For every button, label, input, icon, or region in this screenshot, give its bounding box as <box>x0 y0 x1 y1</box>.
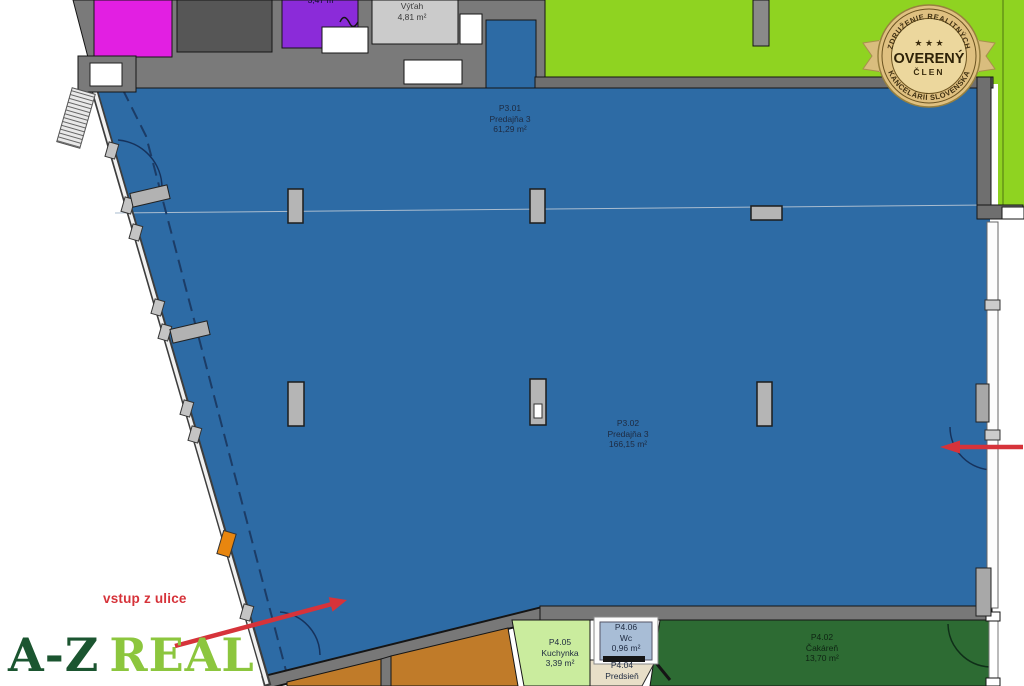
room-label-p404: P4.04 Predsieň <box>605 660 639 681</box>
window-opening <box>90 63 122 86</box>
entrance-annotation: vstup z ulice <box>103 591 187 606</box>
column <box>757 382 772 426</box>
room-label-vytah: Výťah 4,81 m² <box>398 1 427 22</box>
pilaster-right <box>976 384 989 422</box>
door-opening <box>322 27 368 53</box>
window-strip-bottom-right <box>989 621 998 679</box>
door-opening <box>460 14 482 44</box>
pilaster-right <box>976 568 991 616</box>
window-mullion <box>985 300 1000 310</box>
window-frame <box>986 678 1000 686</box>
agency-logo-first: A-Z <box>8 628 99 682</box>
yard-wall-stub <box>753 0 769 46</box>
room-label-p301: P3.01 Predajňa 3 61,29 m² <box>489 103 530 135</box>
room-label-p406: P4.06 Wc 0,96 m² <box>612 622 641 654</box>
window-frame <box>1002 207 1024 219</box>
badge-title: OVERENÝ <box>894 49 965 67</box>
room-label-p405: P4.05 Kuchynka 3,39 m² <box>541 637 578 669</box>
agency-logo-second: REAL <box>109 628 254 682</box>
room-label-p402: P4.02 Čakáreň 13,70 m² <box>805 632 839 664</box>
room-magenta <box>94 0 172 57</box>
badge-subtitle: ČLEN <box>913 66 944 77</box>
agency-logo: A-ZREAL <box>8 629 255 681</box>
blue-corridor-notch <box>486 20 536 88</box>
window-mullion <box>985 430 1000 440</box>
column <box>288 189 303 223</box>
wall-orange-divider <box>381 656 391 686</box>
badge-stars: ★ ★ ★ <box>914 38 943 48</box>
column-marker <box>534 404 542 418</box>
door-opening <box>404 60 462 84</box>
column <box>530 189 545 223</box>
wall-right-vertical <box>977 77 991 218</box>
column <box>288 382 304 426</box>
column <box>751 206 782 220</box>
hatched-window-element <box>57 88 96 148</box>
room-darkgray <box>177 0 272 52</box>
room-label-partial: 3,47 m² <box>308 0 337 6</box>
room-label-p302: P3.02 Predajňa 3 166,15 m² <box>607 418 648 450</box>
floorplan-image: ZDRUŽENIE REALITNÝCH KANCELÁRIÍ SLOVENSK… <box>0 0 1024 686</box>
